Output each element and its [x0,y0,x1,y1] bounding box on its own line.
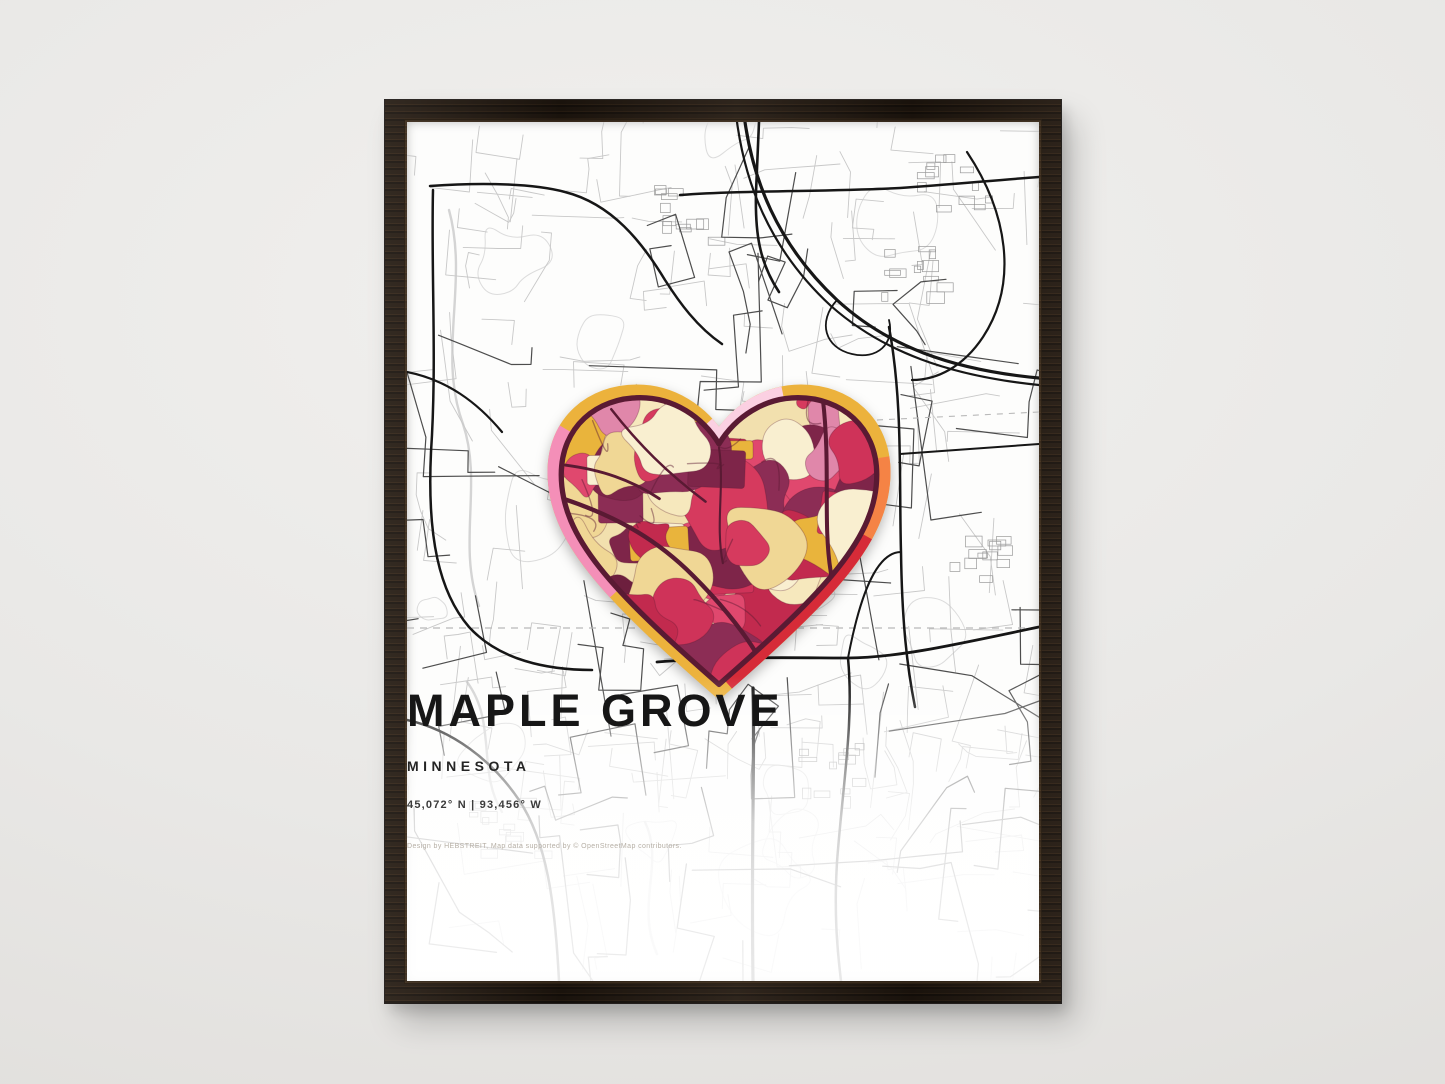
street-map-graphic [407,122,1039,981]
poster-title: MAPLE GROVE [407,688,1039,733]
wall: MAPLE GROVE MINNESOTA 45,072° N | 93,456… [0,0,1445,1084]
poster-credit: Design by HEBSTREIT, Map data supported … [407,843,1039,850]
map-poster: MAPLE GROVE MINNESOTA 45,072° N | 93,456… [407,122,1039,981]
poster-subtitle: MINNESOTA [407,759,1039,773]
poster-frame: MAPLE GROVE MINNESOTA 45,072° N | 93,456… [385,100,1061,1003]
poster-coordinates: 45,072° N | 93,456° W [407,800,1039,811]
